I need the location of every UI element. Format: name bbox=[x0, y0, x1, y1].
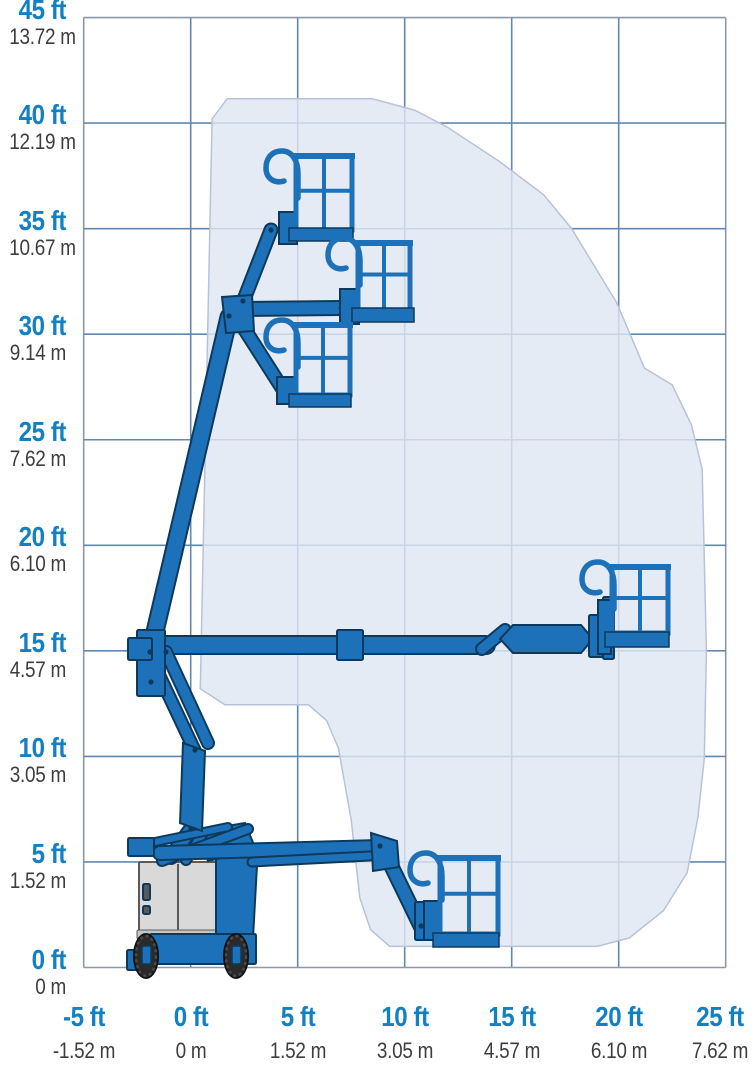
x-tick-m-25: 7.62 m bbox=[668, 1040, 756, 1062]
y-tick-ft-10: 10 ft bbox=[9, 734, 66, 762]
y-tick-ft-15: 15 ft bbox=[9, 629, 66, 657]
x-tick-ft-25: 25 ft bbox=[668, 1003, 756, 1031]
y-tick-ft-45: 45 ft bbox=[9, 0, 66, 24]
x-tick-ft-10: 10 ft bbox=[353, 1003, 456, 1031]
working-envelope-chart bbox=[0, 0, 756, 1080]
x-tick-m-20: 6.10 m bbox=[567, 1040, 670, 1062]
y-tick-m-15: 4.57 m bbox=[9, 659, 66, 681]
x-tick-ft--5: -5 ft bbox=[32, 1003, 135, 1031]
y-tick-ft-25: 25 ft bbox=[9, 418, 66, 446]
y-tick-ft-20: 20 ft bbox=[9, 523, 66, 551]
y-tick-m-30: 9.14 m bbox=[9, 342, 66, 364]
y-tick-ft-30: 30 ft bbox=[9, 312, 66, 340]
y-tick-ft-5: 5 ft bbox=[9, 840, 66, 868]
x-tick-ft-0: 0 ft bbox=[139, 1003, 242, 1031]
y-tick-m-20: 6.10 m bbox=[9, 553, 66, 575]
x-tick-m-5: 1.52 m bbox=[246, 1040, 349, 1062]
x-tick-m-0: 0 m bbox=[139, 1040, 242, 1062]
x-tick-ft-15: 15 ft bbox=[460, 1003, 563, 1031]
x-tick-ft-20: 20 ft bbox=[567, 1003, 670, 1031]
y-tick-ft-35: 35 ft bbox=[9, 207, 66, 235]
x-tick-m-10: 3.05 m bbox=[353, 1040, 456, 1062]
x-tick-ft-5: 5 ft bbox=[246, 1003, 349, 1031]
y-tick-m-5: 1.52 m bbox=[9, 870, 66, 892]
y-tick-m-25: 7.62 m bbox=[9, 448, 66, 470]
y-tick-m-10: 3.05 m bbox=[9, 764, 66, 786]
y-tick-ft-40: 40 ft bbox=[9, 101, 66, 129]
y-tick-m-45: 13.72 m bbox=[9, 26, 66, 48]
x-tick-m-15: 4.57 m bbox=[460, 1040, 563, 1062]
x-tick-m--5: -1.52 m bbox=[32, 1040, 135, 1062]
reach-diagram: 0 ft0 m5 ft1.52 m10 ft3.05 m15 ft4.57 m2… bbox=[0, 0, 756, 1080]
y-tick-m-40: 12.19 m bbox=[9, 131, 66, 153]
y-tick-m-35: 10.67 m bbox=[9, 237, 66, 259]
y-tick-m-0: 0 m bbox=[9, 976, 66, 998]
y-tick-ft-0: 0 ft bbox=[9, 946, 66, 974]
